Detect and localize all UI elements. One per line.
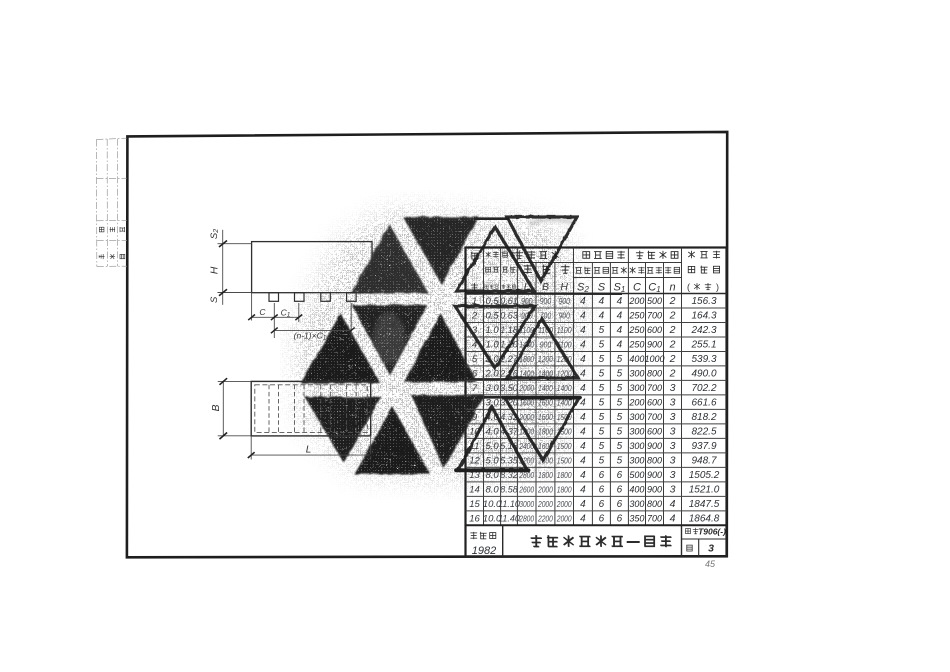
- svg-text:900: 900: [647, 441, 662, 451]
- svg-text:3: 3: [670, 397, 676, 409]
- svg-text:700: 700: [647, 311, 662, 321]
- svg-text:1100: 1100: [557, 325, 572, 335]
- svg-text:9: 9: [472, 412, 478, 423]
- svg-text:6: 6: [599, 499, 605, 510]
- svg-text:200: 200: [628, 296, 644, 306]
- svg-text:818.2: 818.2: [691, 412, 716, 423]
- svg-text:2: 2: [669, 324, 676, 336]
- svg-text:1500: 1500: [557, 456, 572, 466]
- svg-text:300: 300: [629, 456, 644, 466]
- svg-text:3: 3: [670, 382, 676, 394]
- svg-text:5.0: 5.0: [485, 441, 499, 452]
- svg-text:2000: 2000: [518, 383, 534, 393]
- svg-text:S1: S1: [614, 282, 626, 295]
- svg-text:1982: 1982: [472, 545, 496, 557]
- svg-text:164.3: 164.3: [691, 311, 716, 322]
- svg-text:4: 4: [580, 340, 586, 351]
- svg-text:702.2: 702.2: [691, 383, 716, 394]
- svg-text:300: 300: [629, 369, 644, 379]
- svg-text:250: 250: [628, 311, 644, 321]
- svg-text:1600: 1600: [538, 412, 553, 422]
- svg-text:900: 900: [558, 296, 570, 306]
- svg-text:1500: 1500: [557, 441, 572, 451]
- svg-text:8: 8: [472, 398, 478, 409]
- svg-text:5: 5: [599, 427, 605, 438]
- svg-text:600: 600: [647, 398, 662, 408]
- svg-text:200: 200: [628, 398, 644, 408]
- svg-text:5: 5: [599, 441, 605, 452]
- svg-text:2: 2: [669, 368, 676, 380]
- svg-text:5: 5: [599, 398, 605, 409]
- svg-text:250: 250: [628, 340, 644, 350]
- svg-text:3: 3: [670, 411, 676, 423]
- svg-text:): ): [716, 282, 719, 292]
- svg-text:H: H: [560, 281, 568, 293]
- svg-text:4: 4: [670, 498, 676, 510]
- svg-text:3: 3: [670, 455, 676, 467]
- svg-text:(: (: [687, 282, 690, 292]
- svg-text:5: 5: [617, 383, 623, 394]
- svg-text:45: 45: [705, 559, 716, 569]
- svg-text:400: 400: [629, 485, 644, 495]
- svg-text:300: 300: [629, 499, 644, 509]
- svg-text:T906(-): T906(-): [698, 527, 726, 537]
- svg-text:800: 800: [647, 369, 662, 379]
- svg-text:300: 300: [629, 383, 644, 393]
- svg-text:300: 300: [629, 412, 644, 422]
- svg-text:1.0: 1.0: [485, 340, 499, 351]
- svg-text:2.0: 2.0: [484, 369, 499, 380]
- svg-text:5: 5: [617, 412, 623, 423]
- svg-text:1800: 1800: [557, 485, 572, 495]
- svg-text:900: 900: [558, 311, 570, 321]
- svg-text:2600: 2600: [518, 485, 534, 495]
- svg-text:16: 16: [469, 514, 480, 525]
- svg-text:6: 6: [599, 470, 605, 481]
- svg-text:4: 4: [670, 513, 676, 525]
- svg-text:4: 4: [580, 441, 586, 452]
- svg-text:3: 3: [670, 426, 676, 438]
- svg-text:948.7: 948.7: [691, 456, 716, 467]
- svg-text:2: 2: [669, 310, 676, 322]
- svg-text:500: 500: [647, 296, 662, 306]
- svg-text:4: 4: [580, 470, 586, 481]
- svg-text:6: 6: [599, 485, 605, 496]
- svg-text:250: 250: [628, 325, 644, 335]
- svg-text:3: 3: [670, 484, 676, 496]
- svg-text:4: 4: [580, 369, 586, 380]
- svg-text:5: 5: [617, 354, 623, 365]
- svg-text:400: 400: [629, 354, 644, 364]
- svg-text:2000: 2000: [537, 499, 553, 509]
- svg-text:B: B: [210, 404, 222, 411]
- svg-text:5: 5: [617, 398, 623, 409]
- svg-text:800: 800: [647, 456, 662, 466]
- svg-text:661.6: 661.6: [691, 398, 716, 409]
- svg-text:5: 5: [599, 340, 605, 351]
- svg-text:4: 4: [580, 383, 586, 394]
- svg-text:156.3: 156.3: [691, 296, 716, 307]
- svg-text:3.0: 3.0: [485, 383, 499, 394]
- svg-text:4.0: 4.0: [485, 427, 499, 438]
- svg-text:0.63: 0.63: [500, 311, 518, 321]
- svg-text:5: 5: [617, 441, 623, 452]
- svg-text:4: 4: [617, 325, 623, 336]
- svg-text:242.3: 242.3: [690, 325, 716, 336]
- svg-text:4: 4: [580, 325, 586, 336]
- svg-text:3: 3: [670, 469, 676, 481]
- svg-text:1800: 1800: [538, 470, 553, 480]
- svg-text:15: 15: [469, 499, 480, 510]
- svg-text:2: 2: [669, 295, 676, 307]
- svg-text:2000: 2000: [556, 499, 572, 509]
- svg-text:2: 2: [669, 353, 676, 365]
- svg-text:4: 4: [580, 296, 586, 307]
- svg-text:1847.5: 1847.5: [689, 499, 720, 510]
- svg-text:1800: 1800: [538, 427, 553, 437]
- svg-text:700: 700: [647, 514, 662, 524]
- svg-text:5: 5: [599, 383, 605, 394]
- svg-text:300: 300: [629, 441, 644, 451]
- svg-text:4: 4: [580, 354, 586, 365]
- svg-text:800: 800: [647, 499, 662, 509]
- svg-text:900: 900: [647, 470, 662, 480]
- svg-text:4: 4: [580, 514, 586, 525]
- svg-text:1800: 1800: [557, 470, 572, 480]
- svg-text:1864.8: 1864.8: [689, 514, 720, 525]
- svg-text:1505.2: 1505.2: [689, 470, 720, 481]
- svg-text:5.0: 5.0: [485, 456, 499, 467]
- svg-text:500: 500: [629, 470, 644, 480]
- svg-text:6: 6: [617, 485, 623, 496]
- svg-text:4: 4: [580, 485, 586, 496]
- svg-text:490.0: 490.0: [691, 369, 716, 380]
- svg-text:350: 350: [629, 514, 644, 524]
- svg-text:4: 4: [580, 427, 586, 438]
- svg-text:4: 4: [580, 311, 586, 322]
- svg-text:5: 5: [617, 456, 623, 467]
- svg-text:4: 4: [599, 296, 605, 307]
- svg-text:5: 5: [617, 369, 623, 380]
- svg-text:900: 900: [647, 485, 662, 495]
- svg-text:5: 5: [599, 325, 605, 336]
- svg-text:4: 4: [617, 340, 623, 351]
- svg-text:(n-1)×C1: (n-1)×C1: [294, 331, 327, 342]
- svg-text:1400: 1400: [538, 383, 553, 393]
- svg-text:C: C: [259, 307, 266, 317]
- svg-text:1000: 1000: [644, 354, 664, 364]
- svg-text:6: 6: [617, 499, 623, 510]
- svg-text:4: 4: [580, 456, 586, 467]
- svg-text:4: 4: [580, 499, 586, 510]
- svg-text:600: 600: [647, 427, 662, 437]
- svg-text:300: 300: [629, 427, 644, 437]
- svg-text:255.1: 255.1: [690, 340, 716, 351]
- svg-text:900: 900: [540, 340, 552, 350]
- svg-text:S2: S2: [209, 229, 220, 239]
- svg-text:539.3: 539.3: [691, 354, 716, 365]
- svg-text:4: 4: [580, 412, 586, 423]
- svg-text:1.0: 1.0: [485, 325, 499, 336]
- svg-text:H: H: [209, 266, 221, 274]
- svg-text:700: 700: [647, 383, 662, 393]
- svg-text:0.5: 0.5: [485, 311, 499, 322]
- svg-text:11.10: 11.10: [498, 499, 520, 509]
- svg-text:822.5: 822.5: [691, 427, 716, 438]
- svg-text:n: n: [669, 282, 675, 294]
- svg-text:C: C: [633, 282, 641, 294]
- svg-text:937.9: 937.9: [691, 441, 716, 452]
- svg-text:900: 900: [540, 296, 552, 306]
- svg-text:5: 5: [599, 369, 605, 380]
- svg-text:B: B: [542, 281, 549, 293]
- svg-text:1200: 1200: [538, 354, 553, 364]
- svg-text:6: 6: [472, 369, 478, 380]
- svg-text:2: 2: [471, 311, 478, 322]
- svg-text:5: 5: [599, 354, 605, 365]
- svg-text:700: 700: [647, 412, 662, 422]
- svg-text:14: 14: [469, 485, 480, 496]
- svg-text:3000: 3000: [519, 499, 534, 509]
- svg-text:8.58: 8.58: [500, 485, 518, 495]
- svg-text:3: 3: [670, 440, 676, 452]
- svg-text:4: 4: [617, 296, 623, 307]
- svg-text:5: 5: [599, 412, 605, 423]
- svg-text:2000: 2000: [556, 514, 572, 524]
- svg-text:C1: C1: [648, 282, 660, 295]
- svg-text:2000: 2000: [518, 412, 534, 422]
- svg-text:2200: 2200: [537, 514, 553, 524]
- svg-text:12: 12: [469, 456, 480, 467]
- svg-text:11.40: 11.40: [498, 514, 520, 524]
- svg-text:6: 6: [617, 514, 623, 525]
- svg-text:L: L: [306, 445, 312, 456]
- svg-text:1521.0: 1521.0: [689, 485, 720, 496]
- svg-text:6: 6: [599, 514, 605, 525]
- svg-text:4: 4: [599, 311, 605, 322]
- svg-text:3.50: 3.50: [500, 383, 518, 393]
- svg-text:1.18: 1.18: [500, 325, 518, 335]
- svg-text:2: 2: [669, 339, 676, 351]
- svg-text:4: 4: [617, 311, 623, 322]
- svg-text:8.0: 8.0: [485, 485, 499, 496]
- svg-text:7: 7: [472, 383, 478, 394]
- svg-text:5: 5: [599, 456, 605, 467]
- svg-text:2000: 2000: [537, 485, 553, 495]
- svg-text:5: 5: [617, 427, 623, 438]
- svg-text:900: 900: [647, 340, 662, 350]
- svg-text:S: S: [209, 296, 220, 303]
- svg-text:1400: 1400: [557, 383, 572, 393]
- svg-text:5.35: 5.35: [500, 456, 519, 466]
- svg-text:600: 600: [647, 325, 662, 335]
- svg-text:5: 5: [472, 354, 478, 365]
- svg-text:4: 4: [580, 398, 586, 409]
- svg-text:3: 3: [708, 543, 714, 555]
- svg-text:6: 6: [617, 470, 623, 481]
- svg-text:S: S: [598, 282, 606, 294]
- svg-text:2800: 2800: [518, 514, 534, 524]
